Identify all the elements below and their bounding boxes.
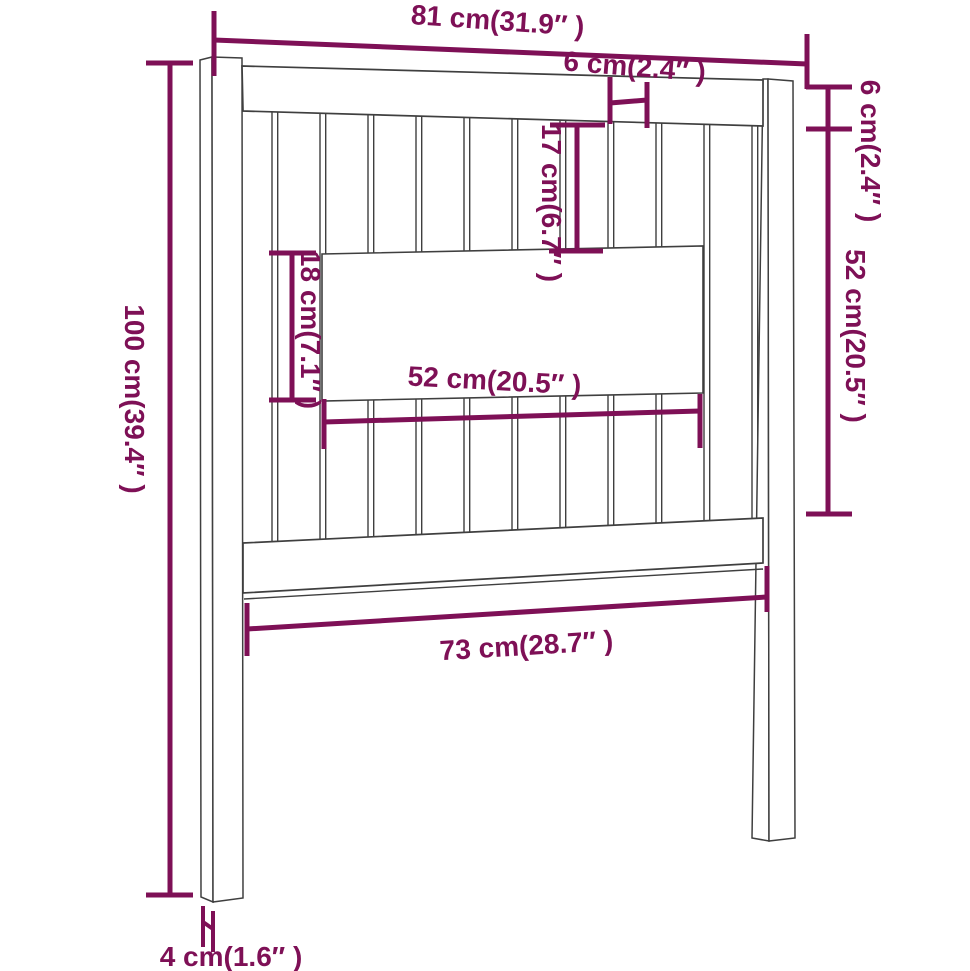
left-post-front-face [212,57,243,902]
dimension-diagram: 81 cm(31.9″ ) 6 cm(2.4″ ) 17 cm(6.7″ ) 6… [0,0,970,971]
headboard-drawing [200,57,795,902]
rail-to-rail-height-label: 52 cm(20.5″ ) [840,249,871,423]
headboard-dimension-svg: 81 cm(31.9″ ) 6 cm(2.4″ ) 17 cm(6.7″ ) 6… [0,0,970,971]
lower-rail-width-label: 73 cm(28.7″ ) [439,625,614,667]
top-rail-thickness-label: 6 cm(2.4″ ) [855,80,886,223]
left-post-side-face [200,57,213,902]
upper-gap-height-label: 17 cm(6.7″ ) [536,124,567,282]
middle-board-height-label: 18 cm(7.1″ ) [295,251,326,409]
overall-height-label: 100 cm(39.4″ ) [119,304,150,493]
right-post-front-face [768,79,795,841]
slat-region-right [703,124,763,521]
overall-width-label: 81 cm(31.9″ ) [410,0,585,42]
leg-thickness-label: 4 cm(1.6″ ) [160,941,303,971]
slat-region-upper [322,113,703,254]
dim-overall-height-lines [146,63,193,895]
